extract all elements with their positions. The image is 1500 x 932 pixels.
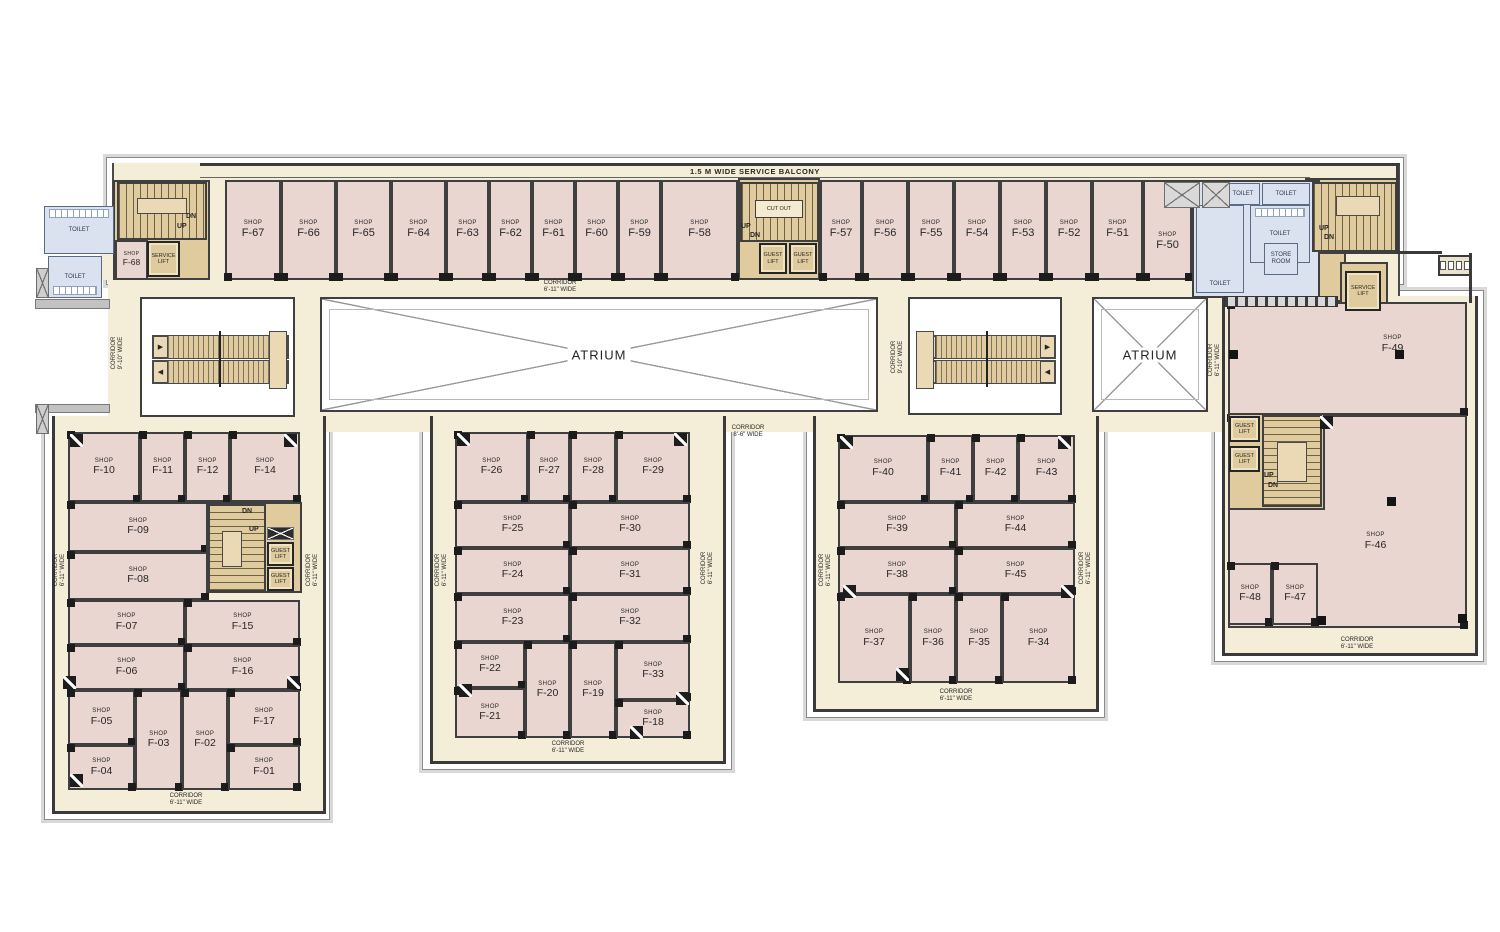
corridor-width: 6'-11" WIDE <box>1086 552 1093 584</box>
shop-type-label: SHOP <box>832 220 851 227</box>
shop-F-68[interactable]: SHOPF-68 <box>115 240 148 280</box>
escalator-arrow-icon: ◀ <box>153 361 168 383</box>
toilet-room: TOILET <box>1226 183 1260 205</box>
shop-type-label: SHOP <box>874 459 893 466</box>
shop-number-label: F-07 <box>116 620 138 632</box>
shop-number-label: F-31 <box>619 568 641 580</box>
shop-F-48[interactable]: SHOPF-48 <box>1228 563 1272 625</box>
shop-type-label: SHOP <box>354 220 373 227</box>
shop-number-label: F-65 <box>352 227 375 240</box>
shop-label: SHOPF-19 <box>582 681 604 700</box>
corner-marker <box>896 668 909 681</box>
shop-number-label: F-52 <box>1058 227 1081 240</box>
shop-label: SHOPF-27 <box>538 458 560 477</box>
shop-label: SHOPF-66 <box>297 220 320 240</box>
shop-type-label: SHOP <box>198 458 217 465</box>
shop-type-label: SHOP <box>1060 220 1079 227</box>
lift: GUEST LIFT <box>267 567 294 591</box>
atrium-label: ATRIUM <box>1119 347 1182 362</box>
corridor-width: 6'-11" WIDE <box>708 552 715 584</box>
stair-direction-label: UP <box>1319 225 1329 232</box>
shop-label: SHOPF-51 <box>1106 220 1129 240</box>
toilet-room: TOILET <box>48 256 102 298</box>
shop-F-27[interactable]: SHOPF-27 <box>528 432 570 502</box>
shop-type-label: SHOP <box>255 708 274 715</box>
lift: GUEST LIFT <box>1229 416 1260 442</box>
shop-number-label: F-39 <box>886 522 908 534</box>
shop-type-label: SHOP <box>922 220 941 227</box>
shop-type-label: SHOP <box>149 731 168 738</box>
shop-label: SHOPF-44 <box>1005 516 1027 535</box>
shop-F-16[interactable]: SHOPF-16 <box>185 645 300 690</box>
shop-label: SHOPF-08 <box>127 567 149 586</box>
shaft-box <box>1202 182 1230 208</box>
shop-number-label: F-40 <box>872 466 894 478</box>
lift: SERVICE LIFT <box>147 241 180 277</box>
stair-landing <box>137 198 187 214</box>
shop-label: SHOPF-67 <box>242 220 265 240</box>
shop-F-47[interactable]: SHOPF-47 <box>1272 563 1318 625</box>
shop-F-07[interactable]: SHOPF-07 <box>68 600 185 645</box>
shop-number-label: F-67 <box>242 227 265 240</box>
shop-F-24[interactable]: SHOPF-24 <box>455 548 570 594</box>
staircase <box>1312 182 1397 252</box>
wall-segment <box>1469 253 1472 303</box>
corridor-width: 6'-11" WIDE <box>442 554 449 586</box>
shop-F-56[interactable]: SHOPF-56 <box>862 180 908 280</box>
corridor-label: CORRIDOR6'-11" WIDE <box>306 536 320 604</box>
shop-F-60[interactable]: SHOPF-60 <box>575 180 618 280</box>
structural-column <box>1317 616 1326 625</box>
shop-number-label: F-21 <box>479 710 501 722</box>
shop-label: SHOPF-35 <box>968 629 990 648</box>
structural-column <box>1229 350 1238 359</box>
shop-number-label: F-24 <box>502 568 524 580</box>
shop-type-label: SHOP <box>544 220 563 227</box>
shop-label: SHOPF-30 <box>619 516 641 535</box>
escalator-lane: ▶▶ <box>920 335 1056 359</box>
shop-F-55[interactable]: SHOPF-55 <box>908 180 954 280</box>
shop-number-label: F-33 <box>642 668 664 680</box>
corridor-label: CORRIDOR6'-11" WIDE <box>534 741 602 755</box>
shop-number-label: F-43 <box>1036 466 1058 478</box>
atrium-label: ATRIUM <box>568 347 631 362</box>
stair-landing <box>222 531 242 567</box>
shop-number-label: F-22 <box>479 662 501 674</box>
shop-number-label: F-09 <box>127 524 149 536</box>
corridor-label: CORRIDOR6'-11" WIDE <box>152 793 220 807</box>
shop-label: SHOPF-18 <box>642 710 664 729</box>
toilet-label: TOILET <box>1233 191 1254 198</box>
corridor-word: CORRIDOR <box>940 689 973 696</box>
shop-F-61[interactable]: SHOPF-61 <box>532 180 575 280</box>
cutout-label: CUT OUT <box>767 206 791 212</box>
shop-F-63[interactable]: SHOPF-63 <box>446 180 489 280</box>
shop-F-20[interactable]: SHOPF-20 <box>525 642 570 738</box>
stair-direction-label: DN <box>242 508 252 515</box>
shop-type-label: SHOP <box>941 459 960 466</box>
shop-number-label: F-46 <box>1365 539 1387 551</box>
wall-segment <box>1310 163 1400 166</box>
shop-number-label: F-44 <box>1005 522 1027 534</box>
shop-F-19[interactable]: SHOPF-19 <box>570 642 616 738</box>
shop-label: SHOPF-28 <box>582 458 604 477</box>
shop-label: SHOPF-10 <box>93 458 115 477</box>
shop-number-label: F-64 <box>407 227 430 240</box>
shop-label: SHOPF-33 <box>642 662 664 681</box>
shop-label: SHOPF-25 <box>502 516 524 535</box>
shop-label: SHOPF-65 <box>352 220 375 240</box>
corridor-word: CORRIDOR <box>170 793 203 800</box>
shop-type-label: SHOP <box>621 516 640 523</box>
lift: GUEST LIFT <box>1229 446 1260 472</box>
shop-number-label: F-61 <box>542 227 565 240</box>
shop-F-65[interactable]: SHOPF-65 <box>336 180 391 280</box>
shop-number-label: F-04 <box>91 765 113 777</box>
shop-type-label: SHOP <box>233 658 252 665</box>
shop-F-23[interactable]: SHOPF-23 <box>455 594 570 642</box>
shop-F-52[interactable]: SHOPF-52 <box>1046 180 1092 280</box>
shop-label: SHOPF-09 <box>127 518 149 537</box>
wall-segment <box>1396 251 1442 254</box>
shaft-box <box>36 404 49 434</box>
shop-label: SHOPF-06 <box>116 658 138 677</box>
corner-marker <box>63 676 76 689</box>
shop-F-31[interactable]: SHOPF-31 <box>570 548 690 594</box>
escalator-landing-pad <box>916 331 934 389</box>
stair-direction-label: UP <box>177 223 187 230</box>
shop-type-label: SHOP <box>409 220 428 227</box>
shop-type-label: SHOP <box>255 758 274 765</box>
shop-F-25[interactable]: SHOPF-25 <box>455 502 570 548</box>
corridor-word: CORRIDOR <box>1079 552 1086 585</box>
shop-type-label: SHOP <box>876 220 895 227</box>
shop-type-label: SHOP <box>1366 532 1385 539</box>
corridor-word: CORRIDOR <box>111 337 118 370</box>
corner-marker <box>1061 585 1074 598</box>
shop-F-67[interactable]: SHOPF-67 <box>225 180 281 280</box>
shop-F-39[interactable]: SHOPF-39 <box>838 502 956 548</box>
escalator-landing-pad <box>269 331 287 389</box>
stair-direction-label: UP <box>249 526 259 533</box>
shop-label: SHOPF-42 <box>985 459 1007 478</box>
shop-type-label: SHOP <box>92 758 111 765</box>
toilet-room: TOILET <box>44 206 114 254</box>
shop-number-label: F-54 <box>966 227 989 240</box>
escalator-well: ▶▶◀◀ <box>140 297 295 417</box>
fixture-box <box>1438 255 1472 276</box>
shop-label: SHOPF-46 <box>1365 532 1387 551</box>
shop-number-label: F-62 <box>499 227 522 240</box>
shop-number-label: F-03 <box>148 737 170 749</box>
lift: GUEST LIFT <box>267 542 294 566</box>
shop-F-54[interactable]: SHOPF-54 <box>954 180 1000 280</box>
shop-label: SHOPF-31 <box>619 562 641 581</box>
shop-label: SHOPF-56 <box>874 220 897 240</box>
shop-type-label: SHOP <box>584 681 603 688</box>
shop-F-51[interactable]: SHOPF-51 <box>1092 180 1143 280</box>
corridor-width: 9'-10" WIDE <box>898 341 905 374</box>
toilet-label: TOILET <box>65 274 86 281</box>
shop-label: SHOPF-07 <box>116 613 138 632</box>
shop-type-label: SHOP <box>1006 562 1025 569</box>
corridor-label: CORRIDOR6'-11" WIDE <box>1208 326 1222 394</box>
shop-label: SHOPF-62 <box>499 220 522 240</box>
shop-number-label: F-59 <box>628 227 651 240</box>
corridor-word: CORRIDOR <box>552 741 585 748</box>
shop-number-label: F-53 <box>1012 227 1035 240</box>
shop-label: SHOPF-52 <box>1058 220 1081 240</box>
shop-type-label: SHOP <box>630 220 649 227</box>
shop-number-label: F-41 <box>940 466 962 478</box>
shop-F-59[interactable]: SHOPF-59 <box>618 180 661 280</box>
corridor-width: 6'-11" WIDE <box>60 554 67 586</box>
corridor-label: CORRIDOR6'-11" WIDE <box>1323 637 1391 651</box>
corridor-width: 6'-11" WIDE <box>544 287 576 294</box>
corner-marker <box>674 433 687 446</box>
shop-label: SHOPF-04 <box>91 758 113 777</box>
shop-F-18[interactable]: SHOPF-18 <box>616 700 690 738</box>
shop-label: SHOPF-11 <box>152 458 173 477</box>
shop-label: SHOPF-45 <box>1005 562 1027 581</box>
shop-label: SHOPF-61 <box>542 220 565 240</box>
shop-F-45[interactable]: SHOPF-45 <box>956 548 1075 594</box>
shop-type-label: SHOP <box>244 220 263 227</box>
shop-label: SHOPF-22 <box>479 656 501 675</box>
shop-type-label: SHOP <box>888 516 907 523</box>
shop-number-label: F-66 <box>297 227 320 240</box>
shop-F-08[interactable]: SHOPF-08 <box>68 552 208 600</box>
shop-label: SHOPF-16 <box>232 658 254 677</box>
corridor-label: CORRIDOR9'-10" WIDE <box>891 323 905 391</box>
shop-number-label: F-56 <box>874 227 897 240</box>
shop-number-label: F-58 <box>688 227 711 240</box>
corridor-word: CORRIDOR <box>306 554 313 587</box>
shop-label: SHOPF-17 <box>253 708 275 727</box>
corner-marker <box>630 726 643 739</box>
shop-F-11[interactable]: SHOPF-11 <box>140 432 185 502</box>
shop-label: SHOPF-12 <box>197 458 219 477</box>
shop-F-28[interactable]: SHOPF-28 <box>570 432 616 502</box>
shop-type-label: SHOP <box>481 704 500 711</box>
toilet-fixtures <box>49 209 109 218</box>
shop-number-label: F-42 <box>985 466 1007 478</box>
corridor-word: CORRIDOR <box>891 341 898 374</box>
corridor-width: 6'-11" WIDE <box>940 696 972 703</box>
toilet-label: TOILET <box>1270 231 1291 238</box>
shop-F-62[interactable]: SHOPF-62 <box>489 180 532 280</box>
shop-label: SHOPF-34 <box>1028 629 1050 648</box>
corner-marker <box>843 585 856 598</box>
corridor-width: 8'-6" WIDE <box>733 432 762 439</box>
shop-number-label: F-30 <box>619 522 641 534</box>
corridor-width: 6'-11" WIDE <box>1341 644 1373 651</box>
structural-column <box>1458 614 1467 623</box>
shop-label: SHOPF-24 <box>502 562 524 581</box>
shop-number-label: F-14 <box>254 464 276 476</box>
washbasin-counter <box>1224 296 1338 307</box>
shop-type-label: SHOP <box>970 629 989 636</box>
corridor-width: 6'-11" WIDE <box>826 554 833 586</box>
shop-label: SHOPF-37 <box>863 629 885 648</box>
toilet-room: TOILET <box>1262 183 1310 205</box>
toilet-room: STORE ROOM <box>1264 243 1298 275</box>
shop-type-label: SHOP <box>233 613 252 620</box>
shaft-box <box>1164 182 1200 208</box>
shop-label: SHOPF-50 <box>1156 232 1179 252</box>
shop-F-02[interactable]: SHOPF-02 <box>182 690 228 790</box>
corridor-word: CORRIDOR <box>53 554 60 587</box>
corridor-word: CORRIDOR <box>819 554 826 587</box>
shop-F-15[interactable]: SHOPF-15 <box>185 600 300 645</box>
shop-number-label: F-34 <box>1028 636 1050 648</box>
shop-F-32[interactable]: SHOPF-32 <box>570 594 690 642</box>
shop-F-03[interactable]: SHOPF-03 <box>135 690 182 790</box>
shop-number-label: F-45 <box>1005 568 1027 580</box>
shop-label: SHOPF-32 <box>619 609 641 628</box>
corridor-label: CORRIDOR6'-11" WIDE <box>1079 534 1093 602</box>
shop-F-64[interactable]: SHOPF-64 <box>391 180 446 280</box>
corner-marker <box>1320 416 1333 429</box>
exterior-wall <box>35 299 110 309</box>
shaft-box <box>267 527 294 540</box>
shop-type-label: SHOP <box>538 681 557 688</box>
shop-type-label: SHOP <box>482 458 501 465</box>
shop-F-12[interactable]: SHOPF-12 <box>185 432 230 502</box>
shop-F-44[interactable]: SHOPF-44 <box>956 502 1075 548</box>
shop-type-label: SHOP <box>129 518 148 525</box>
shop-number-label: F-08 <box>127 573 149 585</box>
stair-direction-label: UP <box>741 223 751 230</box>
shop-number-label: F-51 <box>1106 227 1129 240</box>
shop-F-34[interactable]: SHOPF-34 <box>1002 594 1075 683</box>
shop-type-label: SHOP <box>644 710 663 717</box>
shop-type-label: SHOP <box>584 458 603 465</box>
shop-number-label: F-38 <box>886 568 908 580</box>
escalator-arrow-icon: ◀ <box>1040 361 1055 383</box>
stair-cutout: CUT OUT <box>755 200 803 218</box>
corner-marker <box>676 692 689 705</box>
shop-label: SHOPF-54 <box>966 220 989 240</box>
corridor-width: 9'-10" WIDE <box>118 337 125 370</box>
structural-column <box>1387 497 1396 506</box>
shop-type-label: SHOP <box>256 458 275 465</box>
shop-type-label: SHOP <box>1029 629 1048 636</box>
shop-label: SHOPF-53 <box>1012 220 1035 240</box>
shop-type-label: SHOP <box>481 656 500 663</box>
toilet-room: TOILET <box>1196 205 1244 293</box>
toilet-fixtures <box>1255 208 1305 217</box>
shop-number-label: F-17 <box>253 715 275 727</box>
shop-F-05[interactable]: SHOPF-05 <box>68 690 135 745</box>
shop-number-label: F-36 <box>922 636 944 648</box>
shop-F-41[interactable]: SHOPF-41 <box>928 435 973 502</box>
shop-number-label: F-12 <box>197 464 219 476</box>
shop-F-42[interactable]: SHOPF-42 <box>973 435 1018 502</box>
shop-type-label: SHOP <box>1286 585 1305 592</box>
shop-label: SHOPF-23 <box>502 609 524 628</box>
shop-type-label: SHOP <box>1014 220 1033 227</box>
shop-number-label: F-20 <box>537 687 559 699</box>
stair-landing <box>1336 196 1380 216</box>
shop-F-49[interactable]: SHOPF-49 <box>1228 302 1467 415</box>
shop-F-57[interactable]: SHOPF-57 <box>820 180 862 280</box>
shop-F-58[interactable]: SHOPF-58 <box>661 180 738 280</box>
corridor-width: 6'-11" WIDE <box>170 800 202 807</box>
shop-type-label: SHOP <box>986 459 1005 466</box>
shaft-box <box>36 268 49 298</box>
shop-number-label: F-68 <box>123 258 140 268</box>
shop-label: SHOPF-39 <box>886 516 908 535</box>
wall-segment <box>1396 164 1399 254</box>
shop-F-36[interactable]: SHOPF-36 <box>910 594 956 683</box>
shop-number-label: F-60 <box>585 227 608 240</box>
corridor-label: CORRIDOR8'-6" WIDE <box>714 425 782 439</box>
shop-F-53[interactable]: SHOPF-53 <box>1000 180 1046 280</box>
corridor-label: CORRIDOR6'-11" WIDE <box>701 534 715 602</box>
toilet-label: TOILET <box>69 227 90 234</box>
shop-number-label: F-50 <box>1156 239 1179 252</box>
corridor-word: CORRIDOR <box>1341 637 1374 644</box>
shop-number-label: F-47 <box>1284 591 1306 603</box>
stair-direction-label: UP <box>1264 472 1274 479</box>
corridor-width: 6'-11" WIDE <box>313 554 320 586</box>
shop-F-06[interactable]: SHOPF-06 <box>68 645 185 690</box>
shop-number-label: F-29 <box>642 464 664 476</box>
shop-type-label: SHOP <box>968 220 987 227</box>
shop-label: SHOPF-41 <box>940 459 962 478</box>
floor-plan: 1.5 M WIDE SERVICE BALCONYSHOPF-67SHOPF-… <box>0 0 1500 932</box>
stair-landing <box>1277 442 1307 482</box>
shop-type-label: SHOP <box>587 220 606 227</box>
shop-type-label: SHOP <box>888 562 907 569</box>
corridor-word: CORRIDOR <box>1208 344 1215 377</box>
shop-label: SHOPF-03 <box>148 731 170 750</box>
atrium-void: ATRIUM <box>1092 297 1208 412</box>
shop-F-17[interactable]: SHOPF-17 <box>228 690 300 745</box>
shop-number-label: F-48 <box>1239 591 1261 603</box>
shop-label: SHOPF-68 <box>123 252 140 268</box>
shop-type-label: SHOP <box>458 220 477 227</box>
shop-number-label: F-10 <box>93 464 115 476</box>
corridor-label: CORRIDOR9'-10" WIDE <box>111 319 125 387</box>
shop-number-label: F-11 <box>152 464 173 476</box>
shop-F-35[interactable]: SHOPF-35 <box>956 594 1002 683</box>
shop-label: SHOPF-60 <box>585 220 608 240</box>
shop-number-label: F-02 <box>194 737 216 749</box>
shop-label: SHOPF-40 <box>872 459 894 478</box>
service-balcony: 1.5 M WIDE SERVICE BALCONY <box>200 163 1310 178</box>
shop-F-09[interactable]: SHOPF-09 <box>68 502 208 552</box>
shop-number-label: F-63 <box>456 227 479 240</box>
structural-column <box>1395 350 1404 359</box>
shop-label: SHOPF-47 <box>1284 585 1306 604</box>
escalator-arrow-icon: ▶ <box>153 336 168 358</box>
shop-F-01[interactable]: SHOPF-01 <box>228 745 300 790</box>
shop-F-22[interactable]: SHOPF-22 <box>455 642 525 688</box>
escalator-lane: ◀◀ <box>920 360 1056 384</box>
escalator-section-line <box>219 331 221 387</box>
shop-label: SHOPF-15 <box>232 613 254 632</box>
lift: GUEST LIFT <box>789 243 817 274</box>
corner-marker <box>70 434 83 447</box>
shop-F-66[interactable]: SHOPF-66 <box>281 180 336 280</box>
shop-number-label: F-05 <box>91 715 113 727</box>
shop-number-label: F-16 <box>232 665 254 677</box>
corridor-word: CORRIDOR <box>435 554 442 587</box>
shop-F-30[interactable]: SHOPF-30 <box>570 502 690 548</box>
corridor-word: CORRIDOR <box>544 280 577 287</box>
